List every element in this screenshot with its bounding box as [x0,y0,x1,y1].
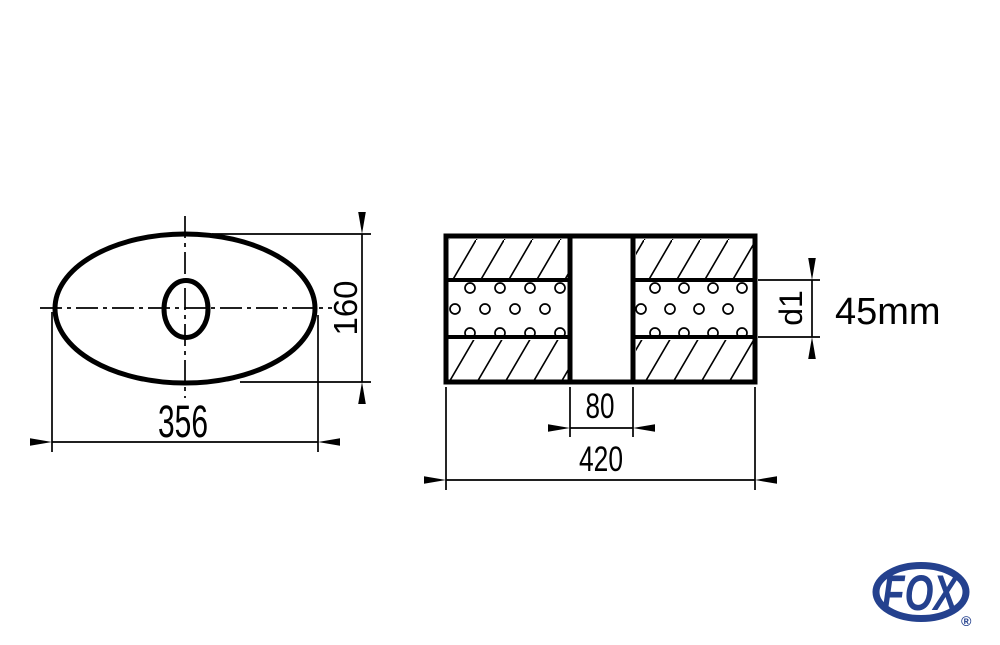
hatch-area-bottom-right [636,340,753,380]
hatch-area-top-left [449,239,568,278]
muffler-technical-drawing: 160 356 [0,0,1000,645]
tube-diameter-note: 45mm [835,291,941,333]
fox-logo: FOX ® [876,565,972,629]
dimension-tube-label: d1 [773,290,809,326]
dimension-gap: 80 [570,387,633,437]
dimension-height-label: 160 [327,280,364,335]
front-view: 160 356 [40,216,371,452]
dimension-length-label: 420 [579,440,623,479]
tube-hole-outline [164,281,208,338]
hatch-area-top-right [636,239,753,278]
dimension-gap-label: 80 [586,387,615,426]
chamber-gap-walls [570,236,633,382]
hatch-area-bottom-left [449,340,568,380]
section-view: 80 420 d1 45mm [446,236,941,490]
fox-logo-text: FOX [882,565,960,621]
dimension-tube-diameter: d1 [758,280,820,337]
drawing-canvas: 160 356 [0,0,1000,645]
dimension-width-label: 356 [158,396,208,447]
perforation-holes [450,283,747,338]
fox-registered-mark: ® [961,613,972,629]
